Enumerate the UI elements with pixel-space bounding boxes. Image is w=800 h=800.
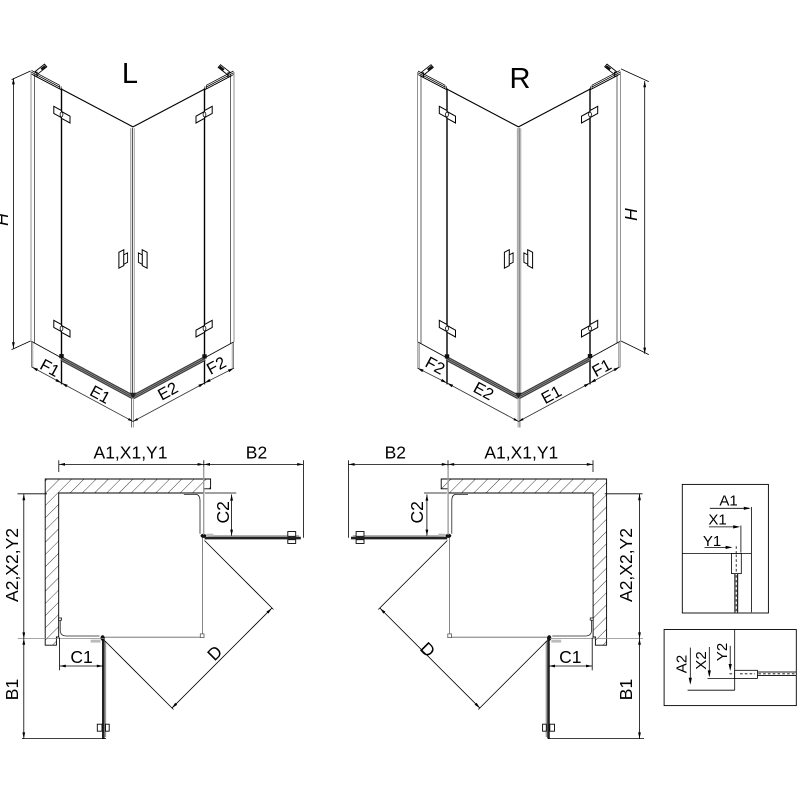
svg-text:A2,X2,Y2: A2,X2,Y2 bbox=[2, 528, 22, 602]
svg-text:A1: A1 bbox=[719, 492, 737, 509]
svg-text:X1: X1 bbox=[708, 512, 726, 529]
svg-text:B2: B2 bbox=[385, 442, 406, 462]
svg-text:C1: C1 bbox=[559, 647, 581, 667]
svg-text:Y1: Y1 bbox=[703, 533, 721, 550]
svg-text:Y2: Y2 bbox=[714, 643, 731, 661]
svg-text:X2: X2 bbox=[693, 651, 710, 669]
svg-text:C2: C2 bbox=[213, 501, 233, 523]
svg-text:H: H bbox=[0, 213, 12, 226]
svg-text:H: H bbox=[621, 208, 641, 221]
svg-text:A2: A2 bbox=[674, 655, 691, 673]
svg-text:B1: B1 bbox=[616, 679, 636, 700]
svg-text:L: L bbox=[122, 58, 138, 90]
svg-text:R: R bbox=[510, 63, 531, 95]
svg-text:A1,X1,Y1: A1,X1,Y1 bbox=[94, 442, 168, 462]
svg-text:B1: B1 bbox=[2, 679, 22, 700]
svg-text:C1: C1 bbox=[70, 647, 92, 667]
svg-text:B2: B2 bbox=[246, 442, 267, 462]
svg-text:C2: C2 bbox=[407, 501, 427, 523]
svg-text:A2,X2,Y2: A2,X2,Y2 bbox=[616, 528, 636, 602]
svg-text:A1,X1,Y1: A1,X1,Y1 bbox=[484, 442, 558, 462]
